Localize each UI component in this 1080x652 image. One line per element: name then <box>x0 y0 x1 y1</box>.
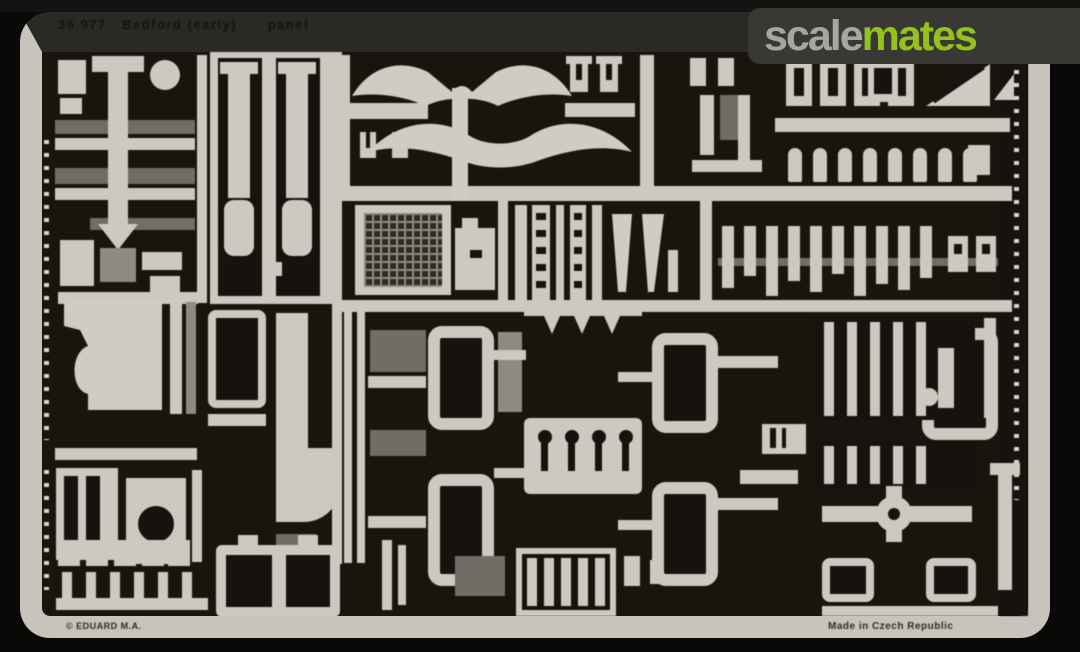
etched-title: 36 977 Bedford (early) panel <box>58 17 309 32</box>
triangle-part <box>994 74 1014 100</box>
watermark-mates: mates <box>862 15 976 58</box>
curved-parts-layer <box>0 0 1080 652</box>
fender-plate-part <box>64 302 162 410</box>
wedge-part <box>612 214 632 292</box>
fret-parts-layer <box>0 0 1080 652</box>
wing-fender-part <box>368 124 632 168</box>
watermark-scale: scale <box>764 15 862 58</box>
etched-made-in: Made in Czech Republic <box>828 621 953 632</box>
product-photo: 36 977 Bedford (early) panel © EDUARD M.… <box>0 0 1080 652</box>
wedge-part <box>642 214 664 292</box>
watermark-scalemates: scalemates <box>748 8 1080 64</box>
etched-copyright: © EDUARD M.A. <box>66 621 142 631</box>
